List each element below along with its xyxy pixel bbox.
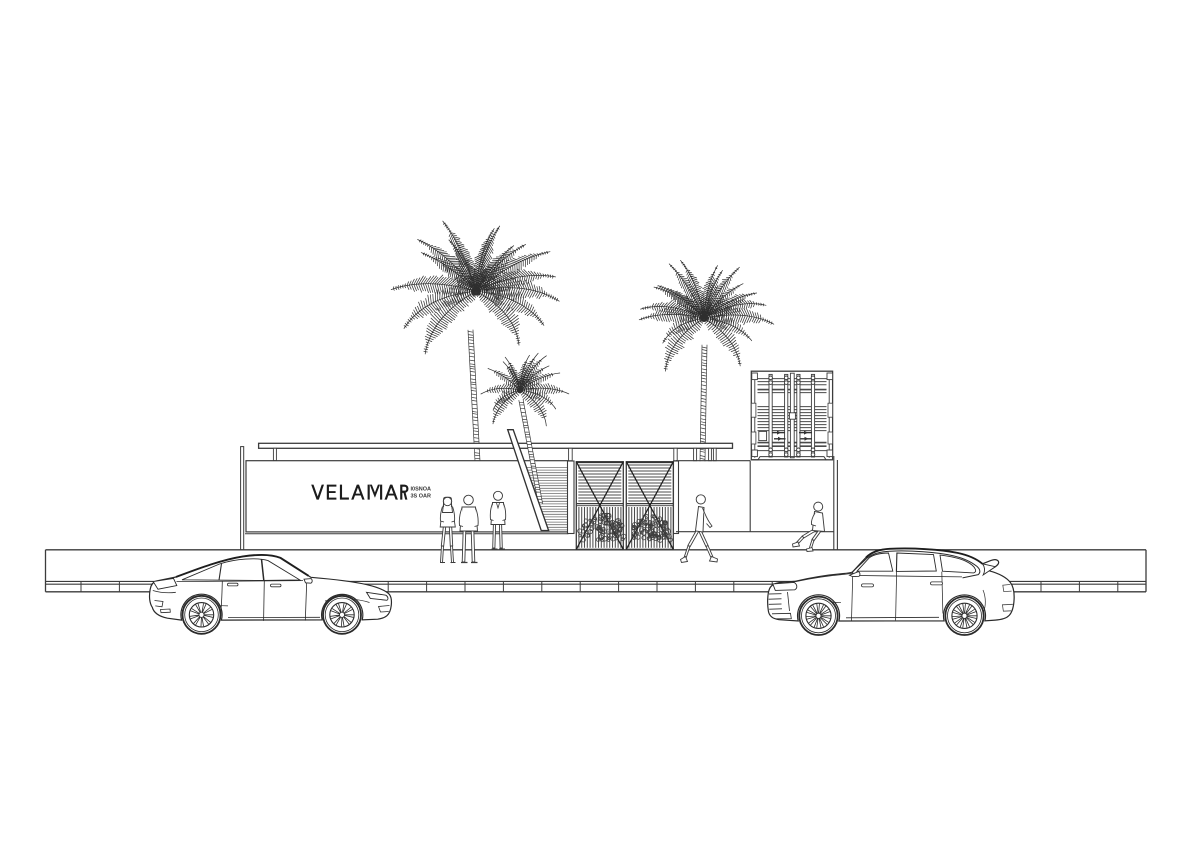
svg-text:3S OAR: 3S OAR [411, 493, 432, 499]
svg-text:I0SNOA: I0SNOA [411, 486, 432, 492]
